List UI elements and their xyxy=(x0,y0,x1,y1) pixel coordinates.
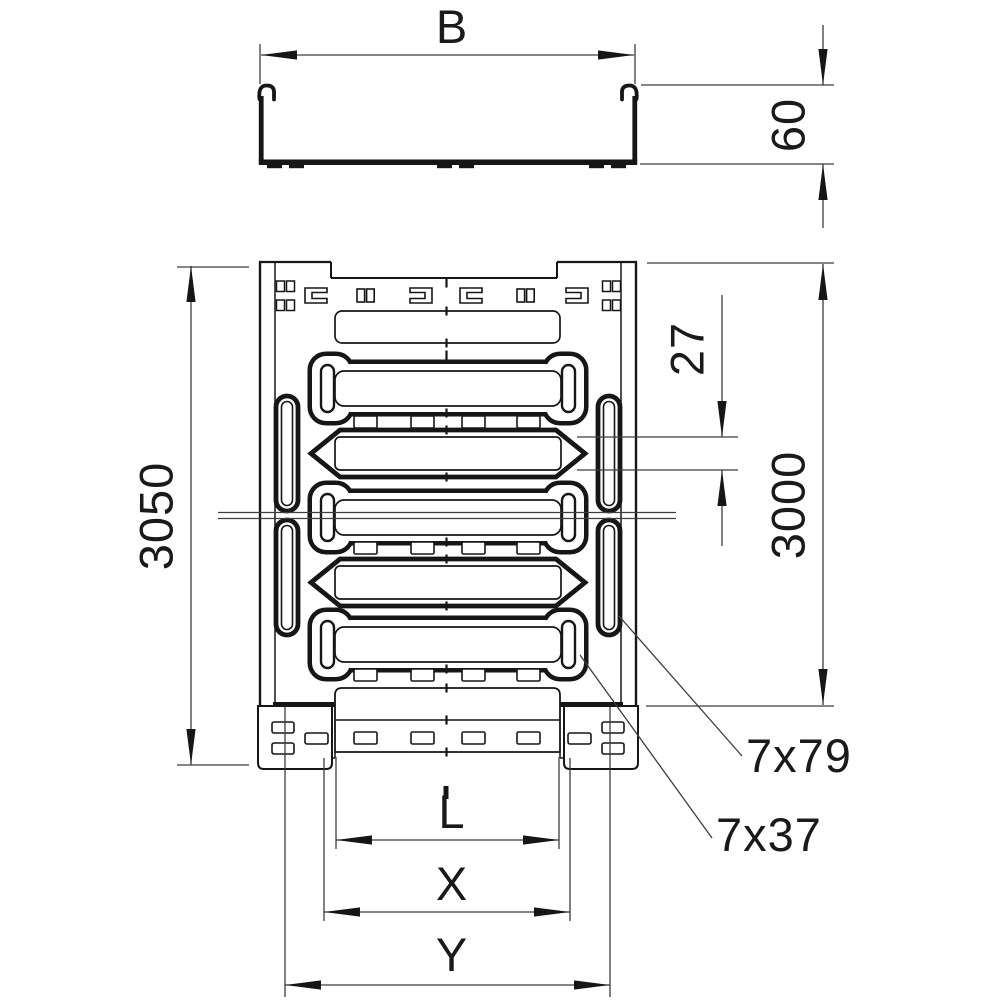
dog-bone-slot-1 xyxy=(312,356,584,421)
floor-feet xyxy=(267,165,626,168)
tray-floor xyxy=(259,160,637,166)
dim-label-27: 27 xyxy=(661,322,714,376)
dim-label-3050: 3050 xyxy=(130,462,183,571)
dim-label-b: B xyxy=(436,0,468,53)
label-7x37: 7x37 xyxy=(716,808,822,861)
dim-label-60: 60 xyxy=(762,98,815,152)
connector-zone xyxy=(258,688,638,769)
dim-label-l: L xyxy=(438,785,465,838)
hex-slot-1 xyxy=(311,430,585,477)
dog-bone-slot-2 xyxy=(312,485,584,550)
dim-label-y: Y xyxy=(436,928,468,981)
side-slot-left-2 xyxy=(276,520,298,635)
hex-slot-2 xyxy=(311,559,585,606)
technical-drawing-page: B 60 3050 3000 27 7x79 xyxy=(0,0,1000,1000)
side-slot-right-1 xyxy=(598,396,620,511)
cable-tray-drawing: B 60 3050 3000 27 7x79 xyxy=(0,0,1000,1000)
side-slot-right-2 xyxy=(598,520,620,635)
side-slot-left-1 xyxy=(276,396,298,511)
dog-bone-slot-3 xyxy=(312,612,584,677)
long-slot-top xyxy=(335,311,560,343)
top-cutout-row xyxy=(277,281,621,311)
label-7x79: 7x79 xyxy=(746,729,852,782)
dim-label-3000: 3000 xyxy=(762,451,815,560)
left-wall xyxy=(259,96,264,162)
right-wall xyxy=(632,96,637,162)
cross-section-view xyxy=(259,86,637,169)
dim-length-3050 xyxy=(177,266,249,765)
plan-view xyxy=(218,262,676,799)
dim-label-x: X xyxy=(436,857,468,910)
